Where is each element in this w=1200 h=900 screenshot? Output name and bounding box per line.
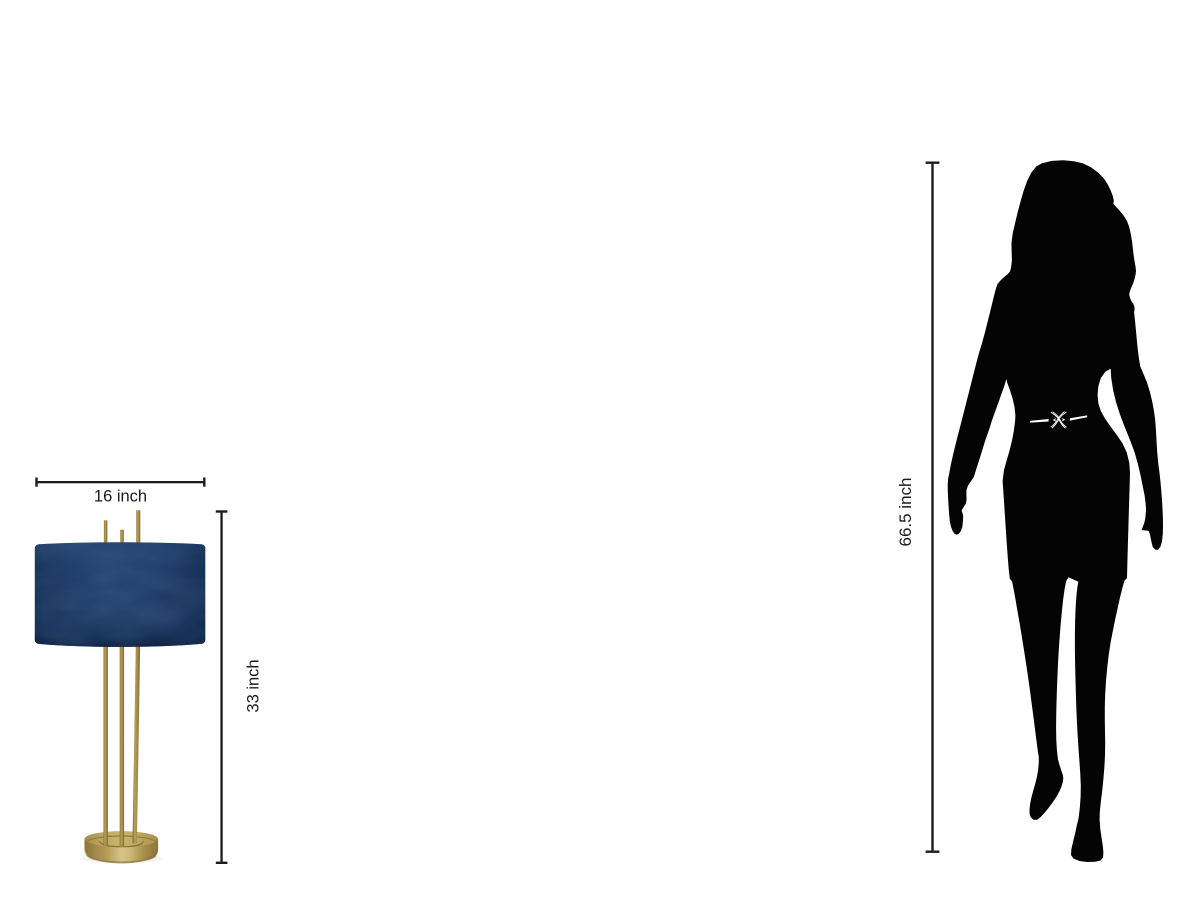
svg-text:16 inch: 16 inch [94,488,147,506]
svg-text:33 inch: 33 inch [244,659,262,712]
svg-text:66.5 inch: 66.5 inch [896,478,915,547]
